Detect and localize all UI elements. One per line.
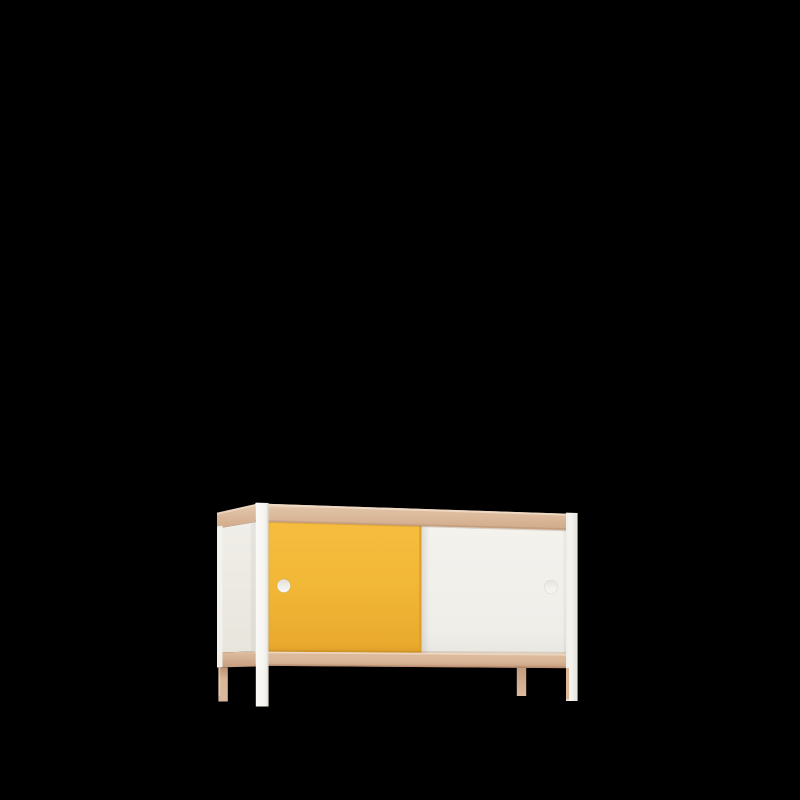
white-door-right-ao-shadow bbox=[564, 529, 567, 654]
front-right-leg-wood-sliver bbox=[566, 668, 569, 700]
front-left-leg-edge-shade bbox=[267, 503, 269, 707]
white-sliding-door bbox=[422, 525, 567, 654]
yellow-door-handle-hole bbox=[277, 579, 290, 592]
rear-right-leg bbox=[517, 668, 526, 696]
black-background bbox=[0, 0, 800, 800]
left-side-bottom-rail bbox=[217, 652, 256, 668]
left-side-panel bbox=[217, 522, 256, 653]
rear-left-leg-lit-edge bbox=[218, 668, 220, 696]
yellow-door-edge bbox=[419, 525, 421, 653]
white-door-handle-hole bbox=[544, 580, 557, 593]
render-canvas bbox=[0, 0, 800, 800]
left-side-front-ao-shadow bbox=[251, 522, 256, 652]
left-side-rear-edge bbox=[217, 526, 223, 668]
sideboard-render bbox=[0, 0, 800, 800]
front-left-leg bbox=[256, 503, 269, 707]
door-junction-shadow bbox=[422, 525, 430, 653]
